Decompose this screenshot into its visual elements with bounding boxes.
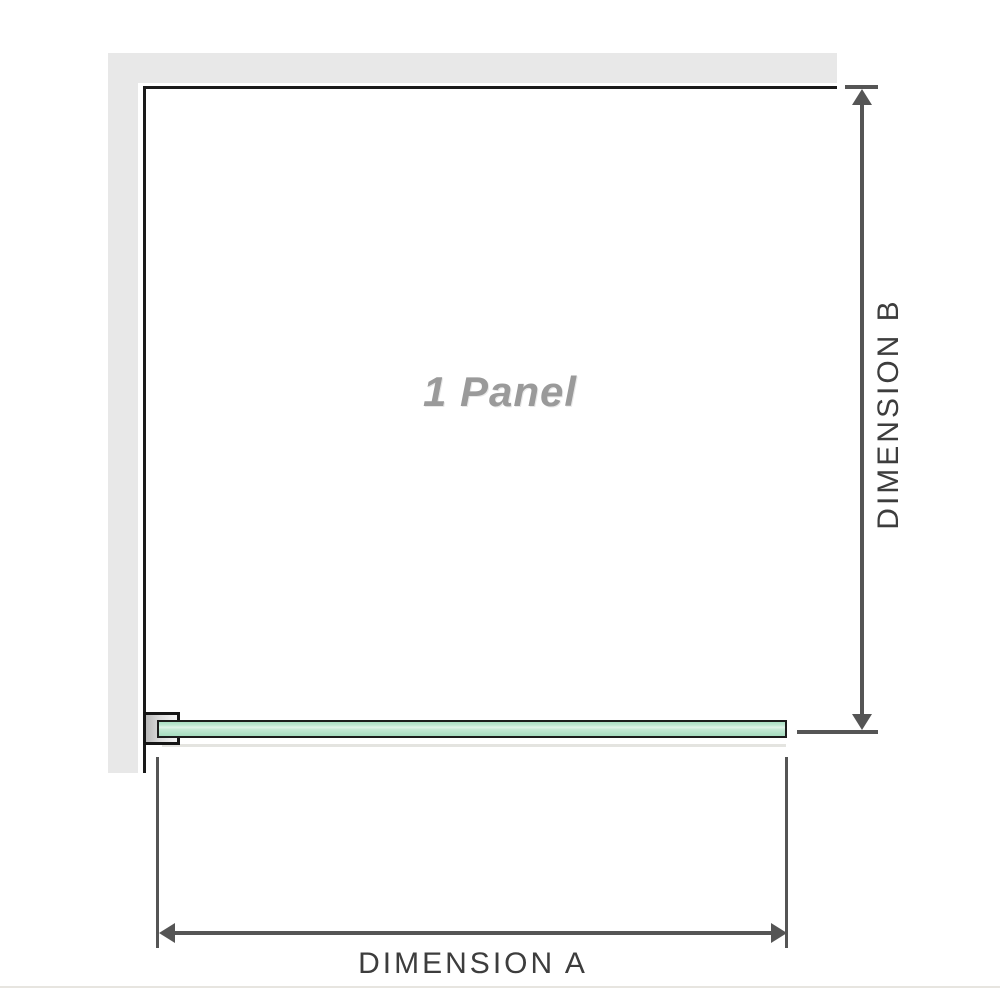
dimension-b-label: DIMENSION B <box>872 264 904 564</box>
panel-outline-left-border <box>143 86 146 773</box>
arrowhead-right-icon <box>771 923 787 943</box>
dimension-a-label: DIMENSION A <box>273 947 673 981</box>
dimension-a-line <box>172 931 773 935</box>
dimension-b-line <box>860 100 864 716</box>
glass-panel-bar <box>157 720 787 738</box>
panel-outline-top-border <box>143 86 837 89</box>
panel-dimension-diagram: 1 Panel DIMENSION B DIMENSION A <box>0 0 1000 1000</box>
arrowhead-up-icon <box>852 89 872 105</box>
dimension-a-left-extension-line <box>156 757 159 948</box>
wall-horizontal-band <box>108 53 837 83</box>
glass-panel-shadow <box>162 744 786 747</box>
dimension-a-right-extension-line <box>785 757 788 948</box>
arrowhead-down-icon <box>852 714 872 730</box>
panel-count-label: 1 Panel <box>300 368 700 416</box>
arrowhead-left-icon <box>159 923 175 943</box>
image-bottom-rule <box>0 986 1000 988</box>
wall-vertical-band <box>108 53 138 773</box>
dimension-b-bottom-tick <box>797 730 878 734</box>
